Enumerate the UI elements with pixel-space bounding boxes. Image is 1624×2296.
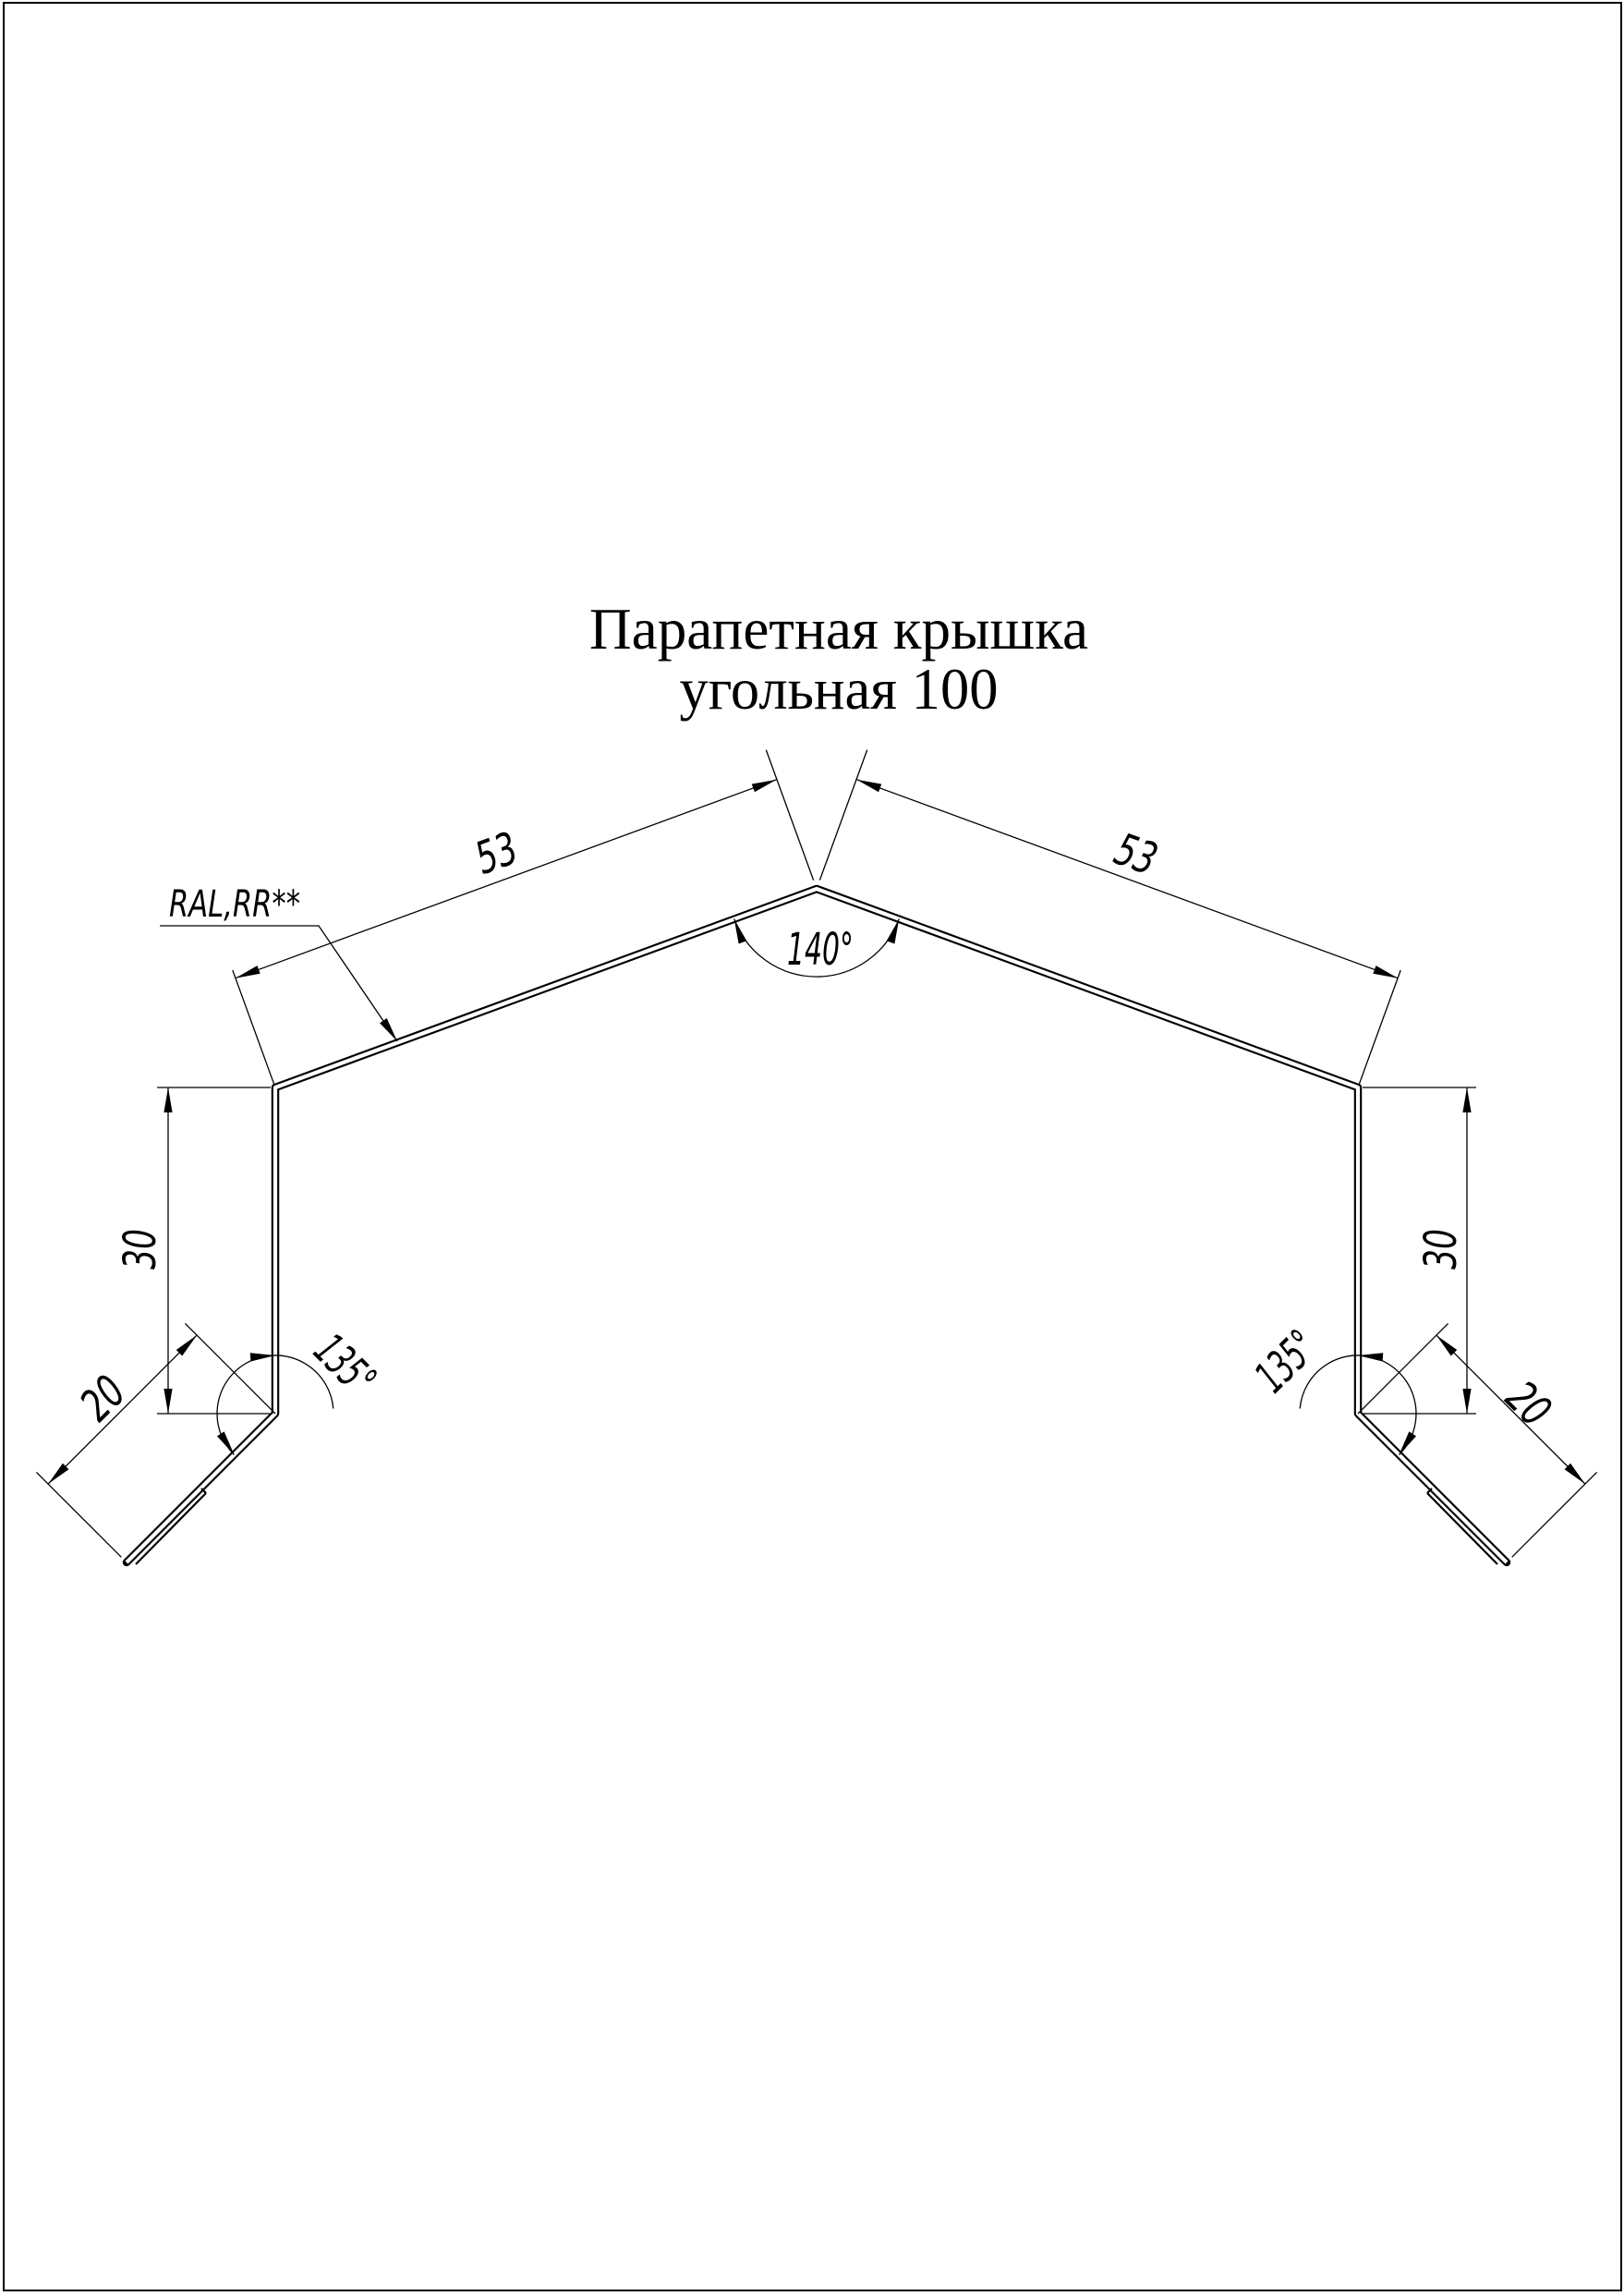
arrowhead	[164, 1087, 172, 1112]
arrowhead	[1400, 1431, 1417, 1454]
dimension-label-hem-left: 20	[70, 1366, 136, 1431]
drawing-sheet: Парапетная крышка угольная 100	[0, 0, 1624, 2296]
arrowhead	[217, 1431, 235, 1454]
hem-fold-left	[136, 1493, 206, 1564]
angle-label-apex: 140°	[787, 924, 854, 976]
arrowhead	[176, 1335, 197, 1355]
dimension-label-slope-right: 53	[1108, 823, 1163, 886]
witness-slope-left-peak	[766, 750, 813, 881]
arrowhead	[164, 1389, 172, 1414]
arrowhead	[856, 780, 881, 793]
witness-hem-right-tip	[1512, 1472, 1597, 1557]
arrowhead	[1436, 1335, 1457, 1355]
arrowhead	[1565, 1464, 1585, 1484]
witness-slope-left-bend	[233, 970, 274, 1084]
arrowhead	[752, 780, 777, 793]
witness-hem-left-tip	[36, 1472, 121, 1557]
arrowhead	[1462, 1087, 1471, 1112]
arrowhead	[1462, 1389, 1471, 1414]
dimension-label-side-right: 30	[1415, 1229, 1467, 1269]
arrowhead	[887, 919, 900, 944]
angle-label-bend-left: 135°	[304, 1324, 386, 1406]
arrowhead	[734, 919, 747, 944]
witness-hem-right-corner	[1358, 1323, 1448, 1414]
dimline-slope-left	[236, 780, 777, 978]
profile-outline	[127, 889, 1507, 1562]
angle-label-bend-right: 135°	[1245, 1320, 1327, 1403]
drawing-title-line-1: Парапетная крышка	[589, 596, 1088, 662]
material-spec-label: RAL,RR**	[169, 883, 300, 926]
arrowhead	[1373, 966, 1398, 978]
hem-fold-right	[1427, 1493, 1497, 1564]
profile-core	[127, 889, 1507, 1562]
arrowhead	[48, 1464, 68, 1484]
witness-hem-left-corner	[185, 1323, 275, 1414]
witness-slope-right-bend	[1359, 970, 1400, 1084]
witness-slope-right-peak	[819, 750, 867, 881]
dimension-label-side-left: 30	[115, 1229, 166, 1269]
material-leader-line	[160, 926, 397, 1041]
sheet-border	[4, 3, 1621, 2290]
dimension-label-hem-right: 20	[1496, 1371, 1561, 1437]
parapet-cap-drawing: Парапетная крышка угольная 100	[0, 0, 1624, 2296]
arrowhead	[380, 1018, 397, 1041]
drawing-title-line-2: угольная 100	[680, 656, 999, 722]
arrowhead	[236, 966, 261, 978]
